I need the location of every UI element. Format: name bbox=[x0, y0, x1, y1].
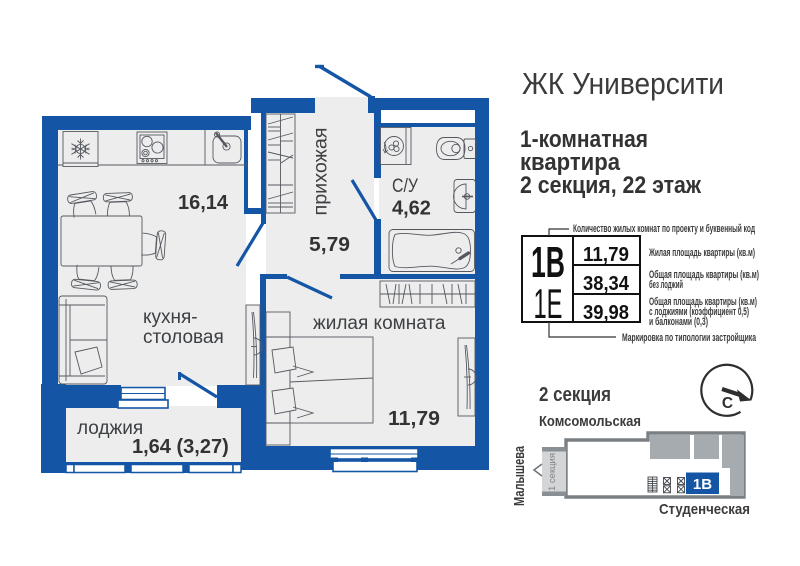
svg-text:11,79: 11,79 bbox=[583, 244, 629, 266]
svg-text:11,79: 11,79 bbox=[388, 408, 440, 430]
svg-text:1Е: 1Е bbox=[534, 280, 563, 327]
svg-text:кухня-: кухня- bbox=[143, 307, 198, 328]
svg-text:39,98: 39,98 bbox=[583, 302, 629, 324]
svg-text:С: С bbox=[722, 395, 733, 412]
svg-text:без лоджий: без лоджий bbox=[649, 279, 683, 291]
svg-text:1 секция: 1 секция bbox=[547, 453, 558, 491]
svg-text:и балконами (0,3): и балконами (0,3) bbox=[649, 316, 708, 328]
svg-text:2 секция, 22 этаж: 2 секция, 22 этаж bbox=[520, 172, 702, 199]
svg-text:2 секция: 2 секция bbox=[539, 384, 611, 406]
svg-text:38,34: 38,34 bbox=[583, 273, 630, 295]
svg-text:1,64 (3,27): 1,64 (3,27) bbox=[132, 436, 229, 458]
svg-text:Количество жилых комнат по про: Количество жилых комнат по проекту и бук… bbox=[573, 223, 755, 235]
svg-text:Комсомольская: Комсомольская bbox=[539, 413, 641, 430]
svg-text:столовая: столовая bbox=[143, 327, 224, 348]
svg-text:прихожая: прихожая bbox=[311, 128, 332, 216]
svg-text:Студенческая: Студенческая bbox=[659, 501, 750, 518]
svg-text:ЖК Университи: ЖК Университи bbox=[522, 66, 724, 101]
svg-text:С/У: С/У bbox=[392, 176, 419, 197]
svg-text:Малышева: Малышева bbox=[511, 446, 528, 506]
svg-text:1В: 1В bbox=[693, 476, 712, 493]
svg-text:Жилая площадь квартиры (кв.м): Жилая площадь квартиры (кв.м) bbox=[648, 247, 755, 259]
svg-text:жилая комната: жилая комната bbox=[313, 313, 446, 334]
svg-text:16,14: 16,14 bbox=[178, 192, 229, 214]
svg-text:5,79: 5,79 bbox=[309, 234, 350, 256]
svg-text:4,62: 4,62 bbox=[392, 198, 431, 220]
svg-text:Маркировка по типологии застро: Маркировка по типологии застройщика bbox=[622, 332, 757, 344]
